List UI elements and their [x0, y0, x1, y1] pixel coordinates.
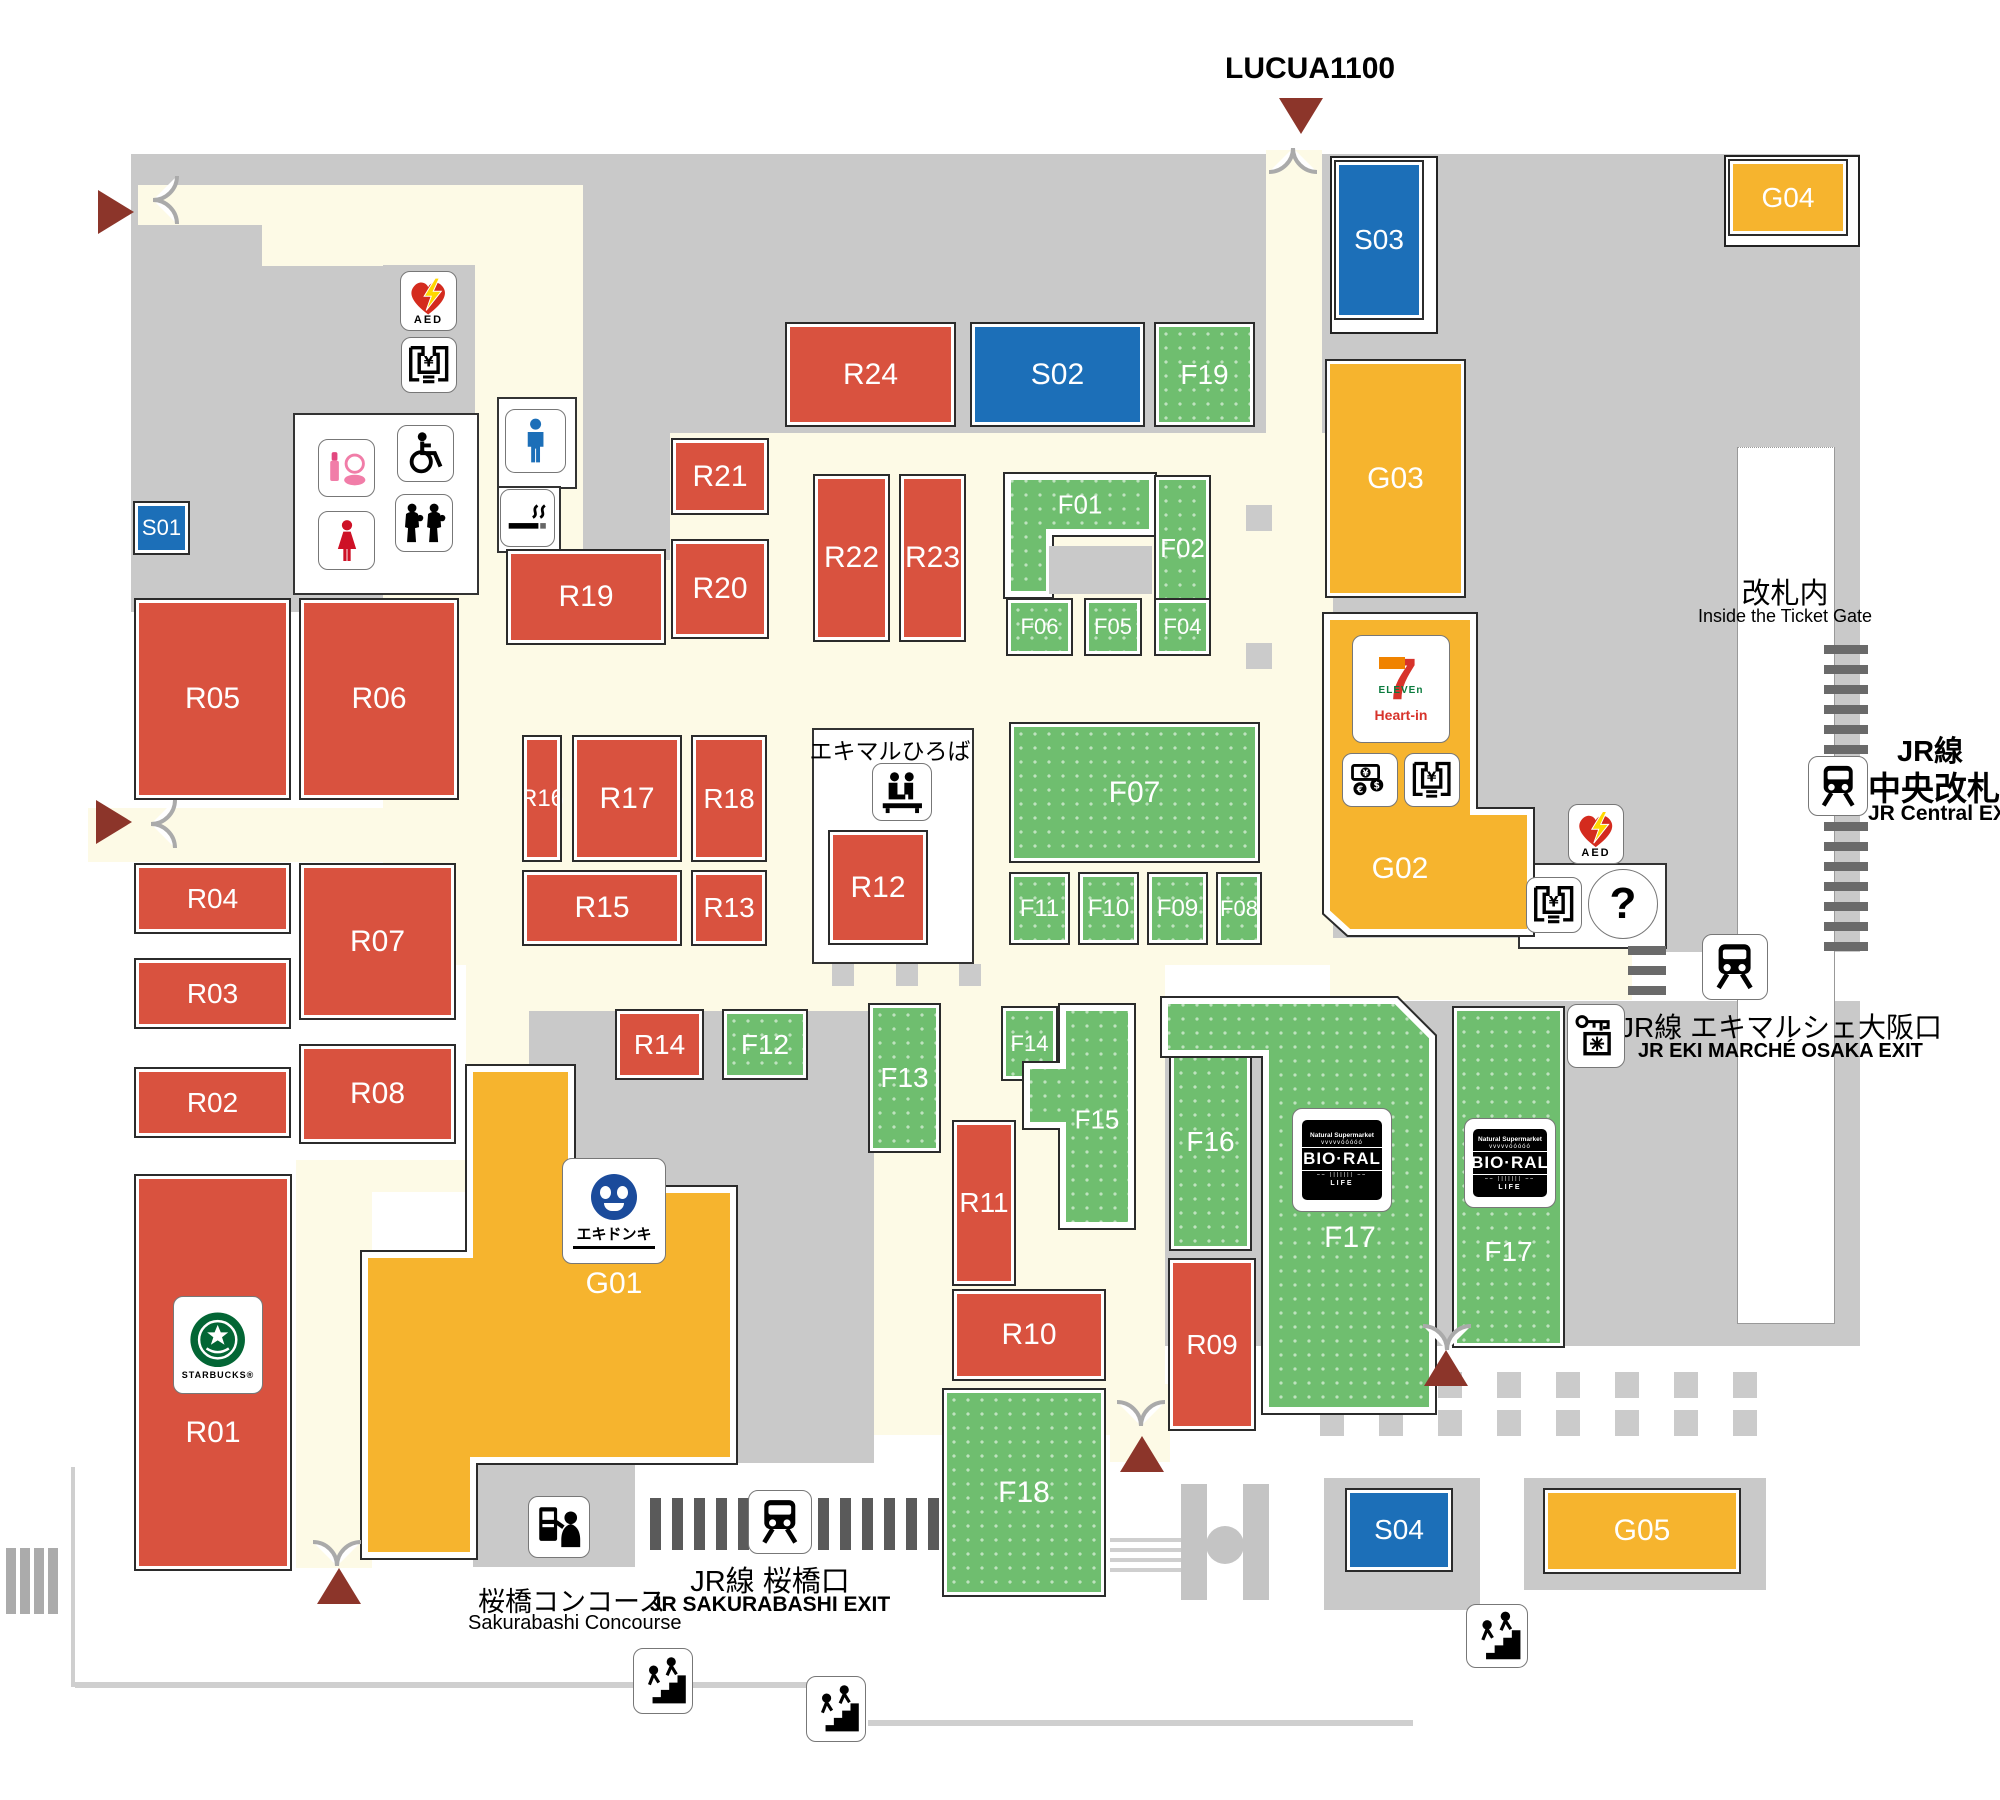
svg-text:¥: ¥: [1362, 768, 1368, 778]
block-label-S03: S03: [1354, 224, 1404, 256]
atm-icon: ¥: [1404, 753, 1460, 807]
block-label-F11: F11: [1020, 895, 1060, 923]
entrance-arrow-up: [317, 1568, 361, 1604]
aed-icon: AED: [1568, 804, 1624, 864]
train-icon: [1702, 934, 1768, 1000]
block-R13[interactable]: R13: [693, 872, 765, 944]
block-label-R13: R13: [703, 892, 754, 924]
train-icon: [748, 1490, 812, 1554]
door-icon: [151, 173, 179, 227]
corridor: [1262, 433, 1330, 613]
escalator: [1243, 1484, 1269, 1600]
block-label-F07: F07: [1109, 776, 1161, 810]
door-icon: [149, 797, 177, 851]
block-label-F01: F01: [1058, 490, 1103, 521]
hatch-mark: [48, 1548, 58, 1614]
block-label-R02: R02: [187, 1087, 238, 1119]
block-label-F12: F12: [741, 1029, 789, 1061]
block-label-S04: S04: [1374, 1514, 1424, 1546]
block-label-R15: R15: [574, 891, 629, 925]
corridor: [262, 222, 383, 266]
atm-icon: ¥: [1526, 877, 1582, 933]
seat-square: [1733, 1410, 1757, 1436]
block-label-F09: F09: [1157, 895, 1198, 923]
block-F19[interactable]: F19: [1156, 324, 1253, 425]
svg-text:¥: ¥: [424, 355, 434, 371]
entrance-arrow-up: [1424, 1350, 1468, 1386]
block-S03[interactable]: S03: [1336, 162, 1422, 318]
block-R10[interactable]: R10: [954, 1291, 1104, 1379]
block-label-F17b: F17: [1484, 1236, 1532, 1268]
block-G03[interactable]: G03: [1327, 361, 1464, 596]
block-G04[interactable]: G04: [1730, 161, 1846, 234]
corridor: [1266, 150, 1322, 440]
block-R24[interactable]: R24: [787, 324, 954, 425]
block-label-F13: F13: [880, 1062, 928, 1094]
seat-square: [1615, 1372, 1639, 1398]
hiroba-label: エキマルひろば: [810, 732, 971, 766]
block-label-F04: F04: [1164, 614, 1202, 640]
pillar: [1246, 643, 1272, 669]
block-R11[interactable]: R11: [954, 1122, 1014, 1284]
powder-room-icon: [318, 439, 375, 497]
wheelchair-icon: [397, 425, 454, 482]
block-F09[interactable]: F09: [1149, 874, 1206, 943]
mens-toilet-icon: [505, 409, 566, 473]
inside-gate-label-en: Inside the Ticket Gate: [1698, 606, 1872, 627]
stairs-icon: [1466, 1604, 1528, 1668]
aed-icon: AED: [400, 271, 457, 331]
seat-square: [1615, 1410, 1639, 1436]
block-label-G04: G04: [1762, 182, 1815, 214]
block-label-S01: S01: [142, 515, 181, 541]
block-R06[interactable]: R06: [301, 600, 457, 798]
block-R02[interactable]: R02: [136, 1069, 289, 1136]
block-label-F08: F08: [1220, 896, 1258, 922]
seat-square: [1674, 1410, 1698, 1436]
block-F04[interactable]: F04: [1156, 600, 1209, 654]
block-R20[interactable]: R20: [673, 541, 767, 637]
block-label-R11: R11: [959, 1187, 1008, 1219]
pillar: [1049, 546, 1152, 594]
block-R23[interactable]: R23: [901, 476, 964, 640]
escalator-rail: [1110, 1548, 1181, 1552]
block-R03[interactable]: R03: [136, 960, 289, 1027]
block-label-R14: R14: [634, 1029, 685, 1061]
block-label-R23: R23: [905, 541, 960, 575]
block-label-R24: R24: [843, 358, 898, 392]
seat-square: [1674, 1372, 1698, 1398]
ticket-gates: [1824, 822, 1868, 952]
seat-square: [1556, 1372, 1580, 1398]
block-R15[interactable]: R15: [524, 872, 680, 944]
information-icon: ?: [1588, 869, 1658, 939]
block-label-R21: R21: [692, 460, 747, 494]
baby-room-icon: [395, 494, 453, 552]
block-label-R17: R17: [599, 782, 654, 816]
ticket-machine-icon: [528, 1496, 590, 1558]
block-label-R04: R04: [187, 883, 238, 915]
concourse-wall: [75, 1682, 808, 1688]
block-G05[interactable]: G05: [1545, 1490, 1739, 1572]
ticket-gates: [818, 1498, 939, 1550]
coin-locker-icon: [1567, 1004, 1625, 1068]
block-label-G05: G05: [1614, 1514, 1671, 1548]
seat-square: [1733, 1372, 1757, 1398]
door-icon: [310, 1540, 364, 1568]
ticket-gates: [1628, 946, 1666, 996]
block-R12[interactable]: R12: [830, 832, 926, 943]
hatch-mark: [6, 1548, 16, 1614]
block-F02[interactable]: F02: [1156, 477, 1209, 620]
atm-icon: ¥: [401, 337, 457, 393]
escalator: [1206, 1526, 1244, 1564]
pillar: [959, 964, 981, 986]
block-F18[interactable]: F18: [944, 1390, 1104, 1595]
stairs-icon: [806, 1676, 866, 1742]
pillar: [1246, 505, 1272, 531]
hatch-mark: [20, 1548, 30, 1614]
block-label-S02: S02: [1031, 358, 1084, 392]
hatch-mark: [34, 1548, 44, 1614]
block-R22[interactable]: R22: [815, 476, 888, 640]
starbucks-logo: STARBUCKS®: [173, 1296, 263, 1394]
block-label-R12: R12: [850, 871, 905, 905]
block-R19[interactable]: R19: [508, 551, 664, 643]
pillar: [832, 964, 854, 986]
corridor: [466, 963, 874, 1011]
womens-toilet-icon: [318, 511, 375, 570]
block-label-F19: F19: [1180, 359, 1228, 391]
block-label-R05: R05: [185, 682, 240, 716]
block-F07[interactable]: F07: [1011, 724, 1258, 861]
concourse-wall: [868, 1720, 1413, 1726]
train-icon: [1808, 756, 1868, 816]
eki-donki-logo: エキドンキ: [562, 1158, 666, 1264]
block-label-R10: R10: [1001, 1318, 1056, 1352]
svg-text:$: $: [1373, 780, 1379, 791]
svg-text:¥: ¥: [1427, 770, 1437, 786]
block-label-R18: R18: [703, 783, 754, 815]
block-label-F18: F18: [998, 1476, 1050, 1510]
svg-text:¥: ¥: [1549, 895, 1559, 911]
block-R05[interactable]: R05: [136, 600, 289, 798]
entrance-arrow-right: [96, 800, 132, 844]
svg-text:€: €: [1356, 784, 1363, 795]
escalator-rail: [1110, 1538, 1181, 1542]
eki-marche-exit-label-en: JR EKI MARCHÉ OSAKA EXIT: [1638, 1040, 1923, 1063]
block-label-R20: R20: [692, 572, 747, 606]
sakurabashi-exit-label-en: JR SAKURABASHI EXIT: [650, 1593, 890, 1617]
block-S04[interactable]: S04: [1347, 1490, 1451, 1570]
block-F05[interactable]: F05: [1086, 600, 1140, 654]
bench-icon: [872, 763, 932, 821]
entrance-arrow-up: [1120, 1436, 1164, 1472]
block-R21[interactable]: R21: [673, 440, 767, 513]
block-R07[interactable]: R07: [301, 865, 454, 1018]
block-label-R06: R06: [351, 682, 406, 716]
jr-central-exit-label-en: JR Central EXIT: [1868, 802, 2000, 826]
block-F06[interactable]: F06: [1008, 600, 1071, 654]
block-label-F15: F15: [1075, 1105, 1120, 1136]
corridor: [670, 433, 1333, 593]
door-icon: [1420, 1324, 1474, 1352]
block-R17[interactable]: R17: [574, 737, 680, 860]
block-label-R01: R01: [185, 1416, 240, 1450]
block-R04[interactable]: R04: [136, 865, 289, 932]
block-label-F17: F17: [1324, 1221, 1376, 1255]
smoking-area-icon: [500, 489, 555, 547]
door-icon: [1114, 1400, 1168, 1428]
escalator-rail: [1110, 1568, 1181, 1572]
wall: [71, 1467, 75, 1687]
block-F08[interactable]: F08: [1218, 874, 1260, 943]
bio-ral-logo: Natural SupermarketvvvvvóóóóóBIO·RAL⎯⎯ |…: [1292, 1108, 1392, 1212]
seat-square: [1556, 1410, 1580, 1436]
block-label-R03: R03: [187, 978, 238, 1010]
block-R16[interactable]: R16: [524, 737, 560, 860]
block-label-G02: G02: [1372, 852, 1429, 886]
block-F11[interactable]: F11: [1011, 874, 1068, 943]
block-R18[interactable]: R18: [693, 737, 765, 860]
bio-ral-logo: Natural SupermarketvvvvvóóóóóBIO·RAL⎯⎯ |…: [1464, 1118, 1556, 1208]
stairs-icon: [633, 1648, 693, 1714]
entrance-arrow-right: [98, 190, 134, 234]
lucua-exit-label: LUCUA1100: [1225, 52, 1395, 86]
block-S02[interactable]: S02: [972, 324, 1143, 425]
seat-square: [1497, 1372, 1521, 1398]
corridor: [383, 185, 583, 265]
ticket-gates: [1824, 645, 1868, 755]
seven-eleven-logo: 7ELEVEnHeart-in: [1352, 635, 1450, 743]
escalator-rail: [1110, 1558, 1181, 1562]
block-label-R07: R07: [350, 925, 405, 959]
block-label-F10: F10: [1088, 895, 1129, 923]
block-label-F05: F05: [1094, 614, 1132, 640]
block-label-F06: F06: [1021, 614, 1059, 640]
concourse-label-en: Sakurabashi Concourse: [468, 1612, 681, 1635]
floor-map: R01R02R03R04R05R06R07R08R09R10R11R12R13R…: [0, 0, 2000, 1800]
block-F10[interactable]: F10: [1080, 874, 1137, 943]
seat-square: [1497, 1410, 1521, 1436]
block-label-F02: F02: [1160, 533, 1205, 564]
block-G01[interactable]: [361, 1065, 737, 1559]
block-label-G01: G01: [586, 1267, 643, 1301]
seat-square: [1438, 1410, 1462, 1436]
corridor: [88, 808, 388, 862]
block-label-R16: R16: [520, 785, 564, 813]
pillar: [896, 964, 918, 986]
block-label-G03: G03: [1367, 462, 1424, 496]
block-label-R22: R22: [824, 541, 879, 575]
door-icon: [1266, 146, 1320, 174]
currency-exchange-icon: ¥€$: [1342, 753, 1398, 807]
block-F13[interactable]: F13: [870, 1005, 939, 1151]
block-S01[interactable]: S01: [135, 503, 188, 553]
block-label-R19: R19: [558, 580, 613, 614]
entrance-arrow-down: [1279, 98, 1323, 134]
escalator: [1181, 1484, 1207, 1600]
